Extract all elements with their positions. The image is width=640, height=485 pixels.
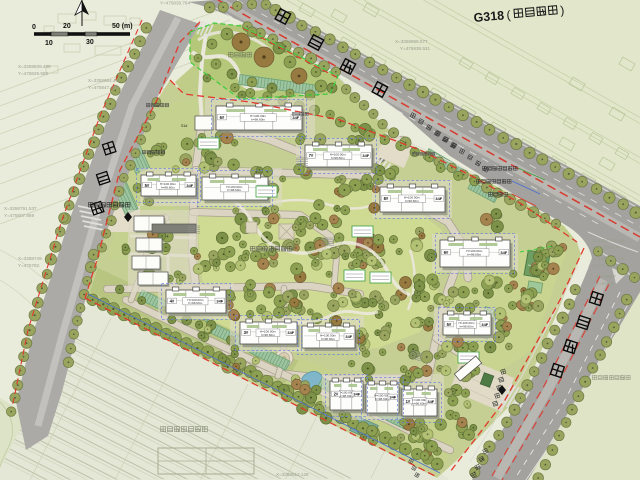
svg-text:Y=476092.66: Y=476092.66 xyxy=(592,245,620,250)
svg-text:X=3359839.489: X=3359839.489 xyxy=(18,64,51,69)
svg-text:h=98.60m: h=98.60m xyxy=(339,394,353,398)
svg-text:h=98.60m: h=98.60m xyxy=(375,397,389,401)
svg-text:h=98.60m: h=98.60m xyxy=(161,186,175,190)
svg-text:3#: 3# xyxy=(244,330,249,335)
svg-text:G318: G318 xyxy=(473,8,505,25)
svg-text:34F: 34F xyxy=(216,298,223,303)
svg-text:34F: 34F xyxy=(362,153,369,158)
svg-text:6#: 6# xyxy=(220,115,225,120)
svg-text:9#: 9# xyxy=(444,250,449,255)
svg-text:Y=475782.: Y=475782. xyxy=(18,263,40,268)
svg-text:5#: 5# xyxy=(145,183,150,188)
svg-text:h=98.60m: h=98.60m xyxy=(251,118,265,122)
svg-text:34F: 34F xyxy=(389,395,396,400)
svg-text:34F: 34F xyxy=(287,330,294,335)
svg-text:Y=475826.585: Y=475826.585 xyxy=(18,71,48,76)
svg-text:7#: 7# xyxy=(309,153,314,158)
svg-text:34F: 34F xyxy=(353,392,360,397)
svg-text:34F: 34F xyxy=(500,250,507,255)
svg-text:34F: 34F xyxy=(427,399,434,404)
svg-text:h=98.60m: h=98.60m xyxy=(467,252,481,256)
svg-text:X=3358966.077: X=3358966.077 xyxy=(395,39,428,44)
svg-text:50 (m): 50 (m) xyxy=(112,23,133,30)
svg-text:Y=476.95: Y=476.95 xyxy=(596,281,616,286)
svg-text:S1#: S1# xyxy=(181,124,187,128)
svg-text:30: 30 xyxy=(86,39,94,46)
svg-text:34F: 34F xyxy=(186,183,193,188)
svg-text:34F: 34F xyxy=(345,334,352,339)
svg-text:h=98.60m: h=98.60m xyxy=(321,337,335,341)
svg-text:h=98.60m: h=98.60m xyxy=(460,325,474,329)
svg-text:X=3358884.451: X=3358884.451 xyxy=(88,78,121,83)
svg-text:Y=475807.959: Y=475807.959 xyxy=(4,213,34,218)
svg-text:X=3358612.126: X=3358612.126 xyxy=(276,472,309,477)
svg-text:Y=475839.764: Y=475839.764 xyxy=(160,1,190,6)
svg-text:h=98.60m: h=98.60m xyxy=(227,188,241,192)
svg-text:X=3358768.045: X=3358768.045 xyxy=(592,256,625,261)
svg-text:h=98.60m: h=98.60m xyxy=(261,333,275,337)
svg-text:X=3358.7: X=3358.7 xyxy=(596,274,616,279)
svg-text:1#: 1# xyxy=(406,399,411,404)
svg-text:X=3358770.186: X=3358770.186 xyxy=(592,238,625,243)
svg-text:4#: 4# xyxy=(170,298,175,303)
svg-text:X=3358749.: X=3358749. xyxy=(18,256,43,261)
svg-text:5#: 5# xyxy=(447,322,452,327)
svg-text:Y=475935.531: Y=475935.531 xyxy=(400,46,430,51)
svg-text:34F: 34F xyxy=(435,196,442,201)
svg-text:2#: 2# xyxy=(334,392,339,397)
svg-text:Y=475847.488: Y=475847.488 xyxy=(88,85,118,90)
svg-text:8#: 8# xyxy=(384,196,389,201)
svg-text:h=98.60m: h=98.60m xyxy=(412,401,426,405)
svg-text:h=98.60m: h=98.60m xyxy=(188,301,202,305)
svg-text:h=98.60m: h=98.60m xyxy=(405,199,419,203)
svg-text:h=98.60m: h=98.60m xyxy=(331,156,345,160)
svg-text:20: 20 xyxy=(63,23,71,30)
svg-text:10: 10 xyxy=(45,40,53,47)
svg-text:0: 0 xyxy=(32,24,36,31)
svg-text:34F: 34F xyxy=(481,322,488,327)
svg-text:Y=476135.435: Y=476135.435 xyxy=(592,263,622,268)
svg-text:X=3358791.537: X=3358791.537 xyxy=(4,206,37,211)
